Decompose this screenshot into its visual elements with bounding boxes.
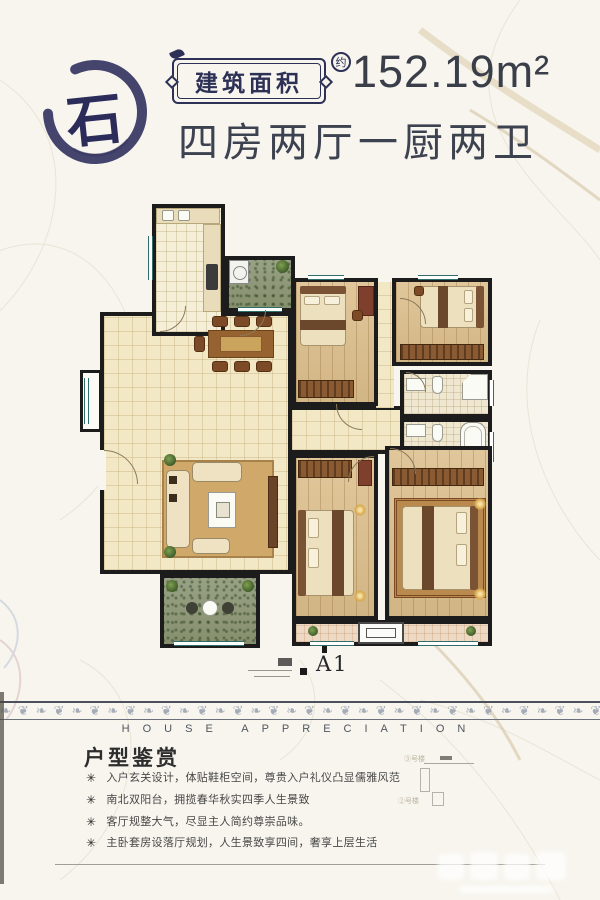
bedroom-n1-window: [308, 275, 344, 280]
section-heading: 户型鉴赏: [84, 742, 180, 772]
sofa-top: [192, 462, 242, 482]
asterisk-bullet-icon: ✳: [86, 816, 96, 830]
bath1-window: [489, 380, 494, 406]
site-road-line: [424, 763, 474, 764]
nightstand-n2: [414, 286, 424, 296]
bedside-lamp: [474, 498, 486, 510]
balcony-strip-window-2: [418, 641, 478, 646]
bed-runner: [438, 286, 448, 328]
bedside-lamp: [354, 504, 366, 516]
list-item: ✳ 客厅规整大气，尽显主人简约尊崇品味。: [86, 816, 426, 830]
keyplan-building-icon: [278, 658, 292, 666]
dining-chair: [234, 361, 250, 372]
area-badge-label: 建筑面积: [195, 64, 303, 98]
plant-icon: [276, 260, 289, 273]
bedroom-n2-window: [418, 275, 458, 280]
bed-s1: [298, 510, 354, 596]
balcony-chair: [186, 602, 198, 614]
throw-pillow: [169, 494, 177, 502]
throw-pillow: [169, 476, 177, 484]
dining-chair: [194, 336, 205, 352]
balcony-strip-window: [310, 641, 354, 646]
wardrobe-n2: [400, 344, 484, 360]
washing-machine-icon: [229, 260, 249, 284]
building-3-label: ③号楼: [404, 754, 425, 764]
list-item: ✳ 入户玄关设计，体贴鞋柜空间，尊贵入户礼仪凸显儒雅风范: [86, 772, 426, 786]
bedside-lamp: [354, 590, 366, 602]
kitchen-sink: [162, 210, 174, 221]
plant-icon: [242, 580, 254, 592]
ink-circle-logo: 石: [36, 50, 156, 176]
unit-label: A1: [316, 652, 349, 676]
balcony-chair: [222, 602, 234, 614]
plant-icon: [308, 626, 318, 636]
dining-runner: [220, 336, 262, 352]
room-layout-text: 四房两厅一厨两卫: [178, 110, 538, 168]
site-arrow-icon: [440, 756, 452, 760]
feature-text: 客厅规整大气，尽显主人简约尊崇品味。: [106, 816, 309, 830]
pillow: [456, 544, 467, 566]
watermark: [438, 848, 593, 896]
dining-chair: [256, 361, 272, 372]
south-balcony-window: [174, 641, 244, 646]
chair-n1: [352, 310, 363, 321]
dining-chair: [212, 361, 228, 372]
divider-title: HOUSE APPRECIATION: [0, 723, 600, 735]
pillow: [304, 296, 320, 305]
keyplan-scale: A1: [248, 652, 378, 694]
bed-runner: [422, 506, 434, 590]
kitchen-sink-2: [178, 210, 190, 221]
plant-icon: [166, 580, 178, 592]
asterisk-bullet-icon: ✳: [86, 837, 96, 851]
pillow: [464, 290, 473, 304]
edge-shadow: [0, 692, 4, 884]
list-item: ✳ 主卧套房设落厅规划，人生景致享四间，奢享上层生活: [86, 837, 426, 851]
poster-page: 石 建筑面积 约 152.19m² 四房两厅一厨两卫: [0, 0, 600, 900]
bay-window-glass: [84, 378, 89, 424]
bed-runner: [300, 320, 346, 330]
scale-bar-icon: [248, 670, 292, 671]
pillow: [308, 518, 319, 538]
pillow: [308, 548, 319, 568]
balcony-table: [202, 600, 218, 616]
bed-runner: [332, 510, 344, 596]
kitchen-window: [148, 236, 153, 280]
tv-console: [268, 476, 278, 548]
approx-circle-label: 约: [331, 52, 351, 72]
bath2-toilet: [432, 424, 443, 442]
bed-s2-headboard: [470, 506, 478, 590]
dining-chair: [212, 316, 228, 327]
scale-bar-icon-2: [254, 676, 290, 677]
plant-icon: [164, 454, 176, 466]
divider-line-bottom: [0, 719, 600, 720]
sofa-bottom: [192, 538, 230, 554]
bed-s1-headboard: [298, 510, 306, 596]
site-plan-sketch: ③号楼 ②号楼: [396, 750, 556, 820]
pillow: [456, 512, 467, 534]
building-2-label: ②号楼: [398, 796, 419, 806]
site-building-outline: [420, 768, 430, 792]
plant-icon: [466, 626, 476, 636]
bedside-lamp: [474, 588, 486, 600]
pillow: [324, 296, 340, 305]
wardrobe-s1: [298, 460, 352, 478]
scrollwork-ornament: ❧❦❧❦❧❦❧❦❧❦❧❦❧❦❧❦❧❦❧❦❧❦❧❦❧❦❧❦❧❦❧❦❧❦❧❦❧❦❧❦…: [0, 703, 600, 719]
bed-n2-headboard: [476, 286, 484, 328]
area-badge: 建筑面积: [172, 58, 326, 104]
keyplan-marker-square: [300, 668, 307, 675]
wardrobe-n1: [298, 380, 354, 398]
feature-text: 入户玄关设计，体贴鞋柜空间，尊贵入户礼仪凸显儒雅风范: [106, 772, 400, 786]
bath2-sink: [406, 424, 426, 437]
site-building-outline-2: [432, 792, 444, 806]
coffee-table-tray: [216, 502, 230, 518]
feature-text: 主卧套房设落厅规划，人生景致享四间，奢享上层生活: [106, 837, 377, 851]
bed-n1: [300, 286, 346, 346]
bath1-toilet: [432, 376, 443, 394]
asterisk-bullet-icon: ✳: [86, 772, 96, 786]
feature-text: 南北双阳台，拥揽春华秋实四季人生景致: [106, 794, 309, 808]
floor-plan: [70, 192, 515, 654]
ac-unit-inner: [366, 628, 396, 638]
asterisk-bullet-icon: ✳: [86, 794, 96, 808]
stove-icon: [206, 264, 218, 290]
logo-character: 石: [62, 73, 126, 159]
pillow: [464, 308, 473, 322]
area-value: 152.19m²: [352, 46, 550, 98]
bed-n2: [420, 286, 484, 328]
plant-icon: [164, 546, 176, 558]
bed-n1-headboard: [300, 286, 346, 294]
feature-list: ✳ 入户玄关设计，体贴鞋柜空间，尊贵入户礼仪凸显儒雅风范 ✳ 南北双阳台，拥揽春…: [86, 772, 426, 859]
list-item: ✳ 南北双阳台，拥揽春华秋实四季人生景致: [86, 794, 426, 808]
